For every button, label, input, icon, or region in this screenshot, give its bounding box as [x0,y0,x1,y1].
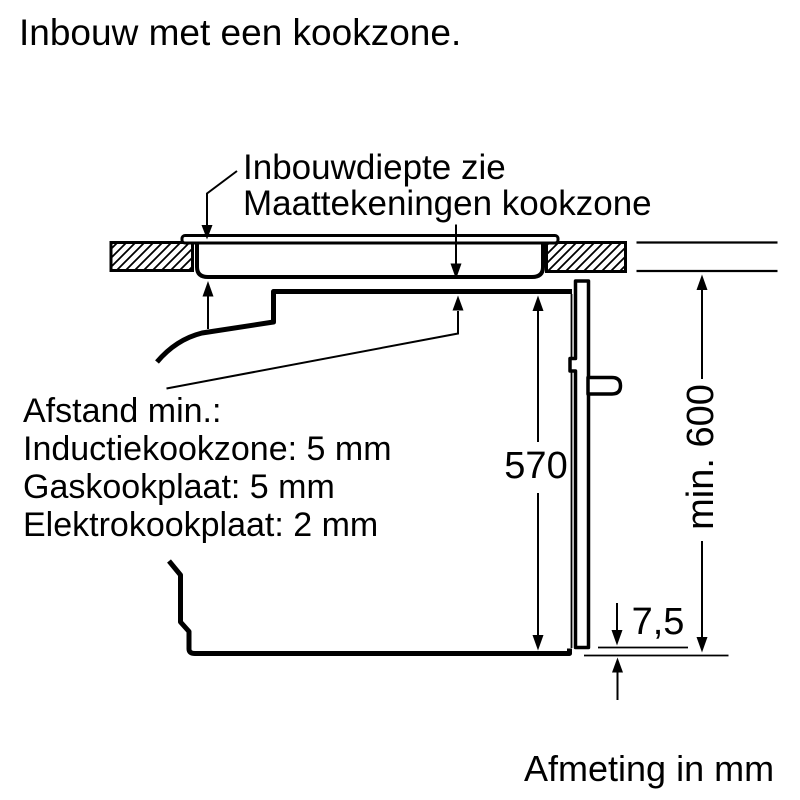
dimension-label-min-600: min. 600 [681,372,721,542]
cooktop-flange [182,236,558,244]
arrow-up-icon [533,296,544,312]
clearance-note: Afstand min.: Inductiekookzone: 5 mm Gas… [23,392,392,544]
clearance-arrow-left [203,281,214,329]
arrow-up-icon [612,658,623,673]
countertop-section-right [547,243,626,272]
installation-diagram-page: Inbouw met een kookzone. Inbouwdiepte zi… [0,0,800,800]
arrow-down-icon [612,630,623,646]
dimension-label-570: 570 [502,447,570,485]
oven-door-handle [588,378,621,395]
callout-inbouwdiepte: Inbouwdiepte zie Maattekeningen kookzone [243,150,652,222]
clearance-note-electric: Elektrokookplaat: 2 mm [23,506,392,544]
countertop-edge-lines [637,243,778,272]
callout-leader [202,171,238,240]
arrow-up-icon [203,281,214,297]
callout-line-1: Inbouwdiepte zie [243,150,652,186]
clearance-note-gas: Gaskookplaat: 5 mm [23,468,392,506]
arrow-up-icon [697,275,708,291]
dimension-label-7-5: 7,5 [628,603,688,641]
arrow-down-icon [697,637,708,653]
cooktop-body [197,241,543,277]
clearance-leader [167,296,464,389]
units-note: Afmeting in mm [524,751,774,787]
oven-bottom-outline [169,561,570,654]
page-title: Inbouw met een kookzone. [19,14,461,51]
arrow-down-icon [533,635,544,651]
countertop-section-left [111,243,193,271]
clearance-note-induction: Inductiekookzone: 5 mm [23,430,392,468]
oven-door [570,281,589,648]
callout-line-2: Maattekeningen kookzone [243,186,652,222]
arrow-up-icon [453,296,464,311]
clearance-note-heading: Afstand min.: [23,392,392,430]
